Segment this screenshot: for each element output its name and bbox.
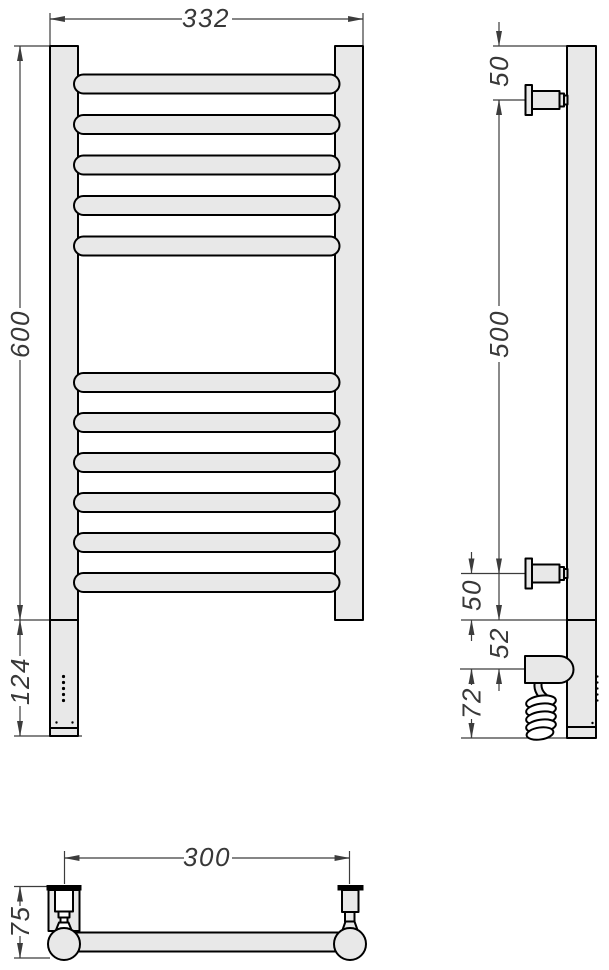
bracket-stem-section: [55, 890, 73, 912]
dim-label-front-lower: 124: [5, 657, 35, 705]
rail: [74, 156, 340, 175]
dimension-side-cable-drop: 72: [457, 669, 487, 738]
heater-housing: [525, 656, 574, 683]
bracket-stem: [342, 890, 359, 912]
dim-label-bottom-span: 300: [183, 842, 231, 872]
dimension-front-height: 600: [5, 46, 50, 620]
dimension-front-width: 332: [50, 3, 363, 45]
dimension-side-top-offset: 50: [484, 22, 514, 87]
post-end-cap-profile: [567, 727, 596, 738]
dimension-side-housing-offset: 52: [484, 574, 514, 692]
rail: [74, 493, 340, 512]
rail: [74, 453, 340, 472]
wall-plate-right: [338, 885, 364, 891]
dim-label-bottom-depth: 75: [5, 906, 35, 938]
rail: [74, 75, 340, 94]
dimension-side-bracket-span: 500: [484, 100, 514, 574]
left-post: [50, 46, 78, 620]
dim-label-side-bracket-span: 500: [484, 310, 514, 358]
post-plan-right: [334, 928, 366, 960]
rail: [74, 237, 340, 256]
post-plan-left: [48, 928, 80, 960]
rail: [74, 533, 340, 552]
dim-label-side-cable-drop: 72: [457, 687, 487, 719]
dim-label-side-housing-offset: 52: [484, 627, 514, 659]
dimension-bottom-bracket-span: 300: [65, 842, 350, 884]
technical-drawing: 332 600 124 50 500: [0, 0, 609, 970]
bottom-view: [47, 885, 367, 960]
dimension-bottom-depth: 75: [5, 887, 50, 959]
rail: [74, 373, 340, 392]
wall-plate-left: [47, 885, 82, 891]
dim-label-side-top-offset: 50: [484, 55, 514, 87]
rail-group: [74, 75, 340, 593]
dim-label-front-width: 332: [182, 3, 230, 33]
right-bracket-plan: [334, 885, 366, 960]
left-post-heater-section: [50, 620, 78, 728]
left-post-end-cap: [50, 728, 78, 736]
rail-plan: [64, 933, 350, 952]
wall-bracket-top: [526, 85, 568, 115]
dim-label-side-bottom-offset: 50: [457, 579, 487, 611]
dim-label-front-height: 600: [5, 310, 35, 358]
side-view: [525, 46, 599, 741]
dimension-side-bottom-offset: 50: [457, 552, 487, 641]
rail: [74, 196, 340, 215]
post-profile: [567, 46, 596, 620]
front-view: [50, 46, 363, 736]
rail: [74, 573, 340, 592]
rail: [74, 115, 340, 134]
cap-screw-dot-side: [591, 722, 593, 724]
left-bracket-section: [47, 885, 82, 960]
drawing-canvas: 332 600 124 50 500: [0, 0, 609, 970]
wall-bracket-bottom: [526, 559, 568, 589]
power-cable-coil: [525, 694, 556, 742]
rail: [74, 413, 340, 432]
right-post: [335, 46, 363, 620]
